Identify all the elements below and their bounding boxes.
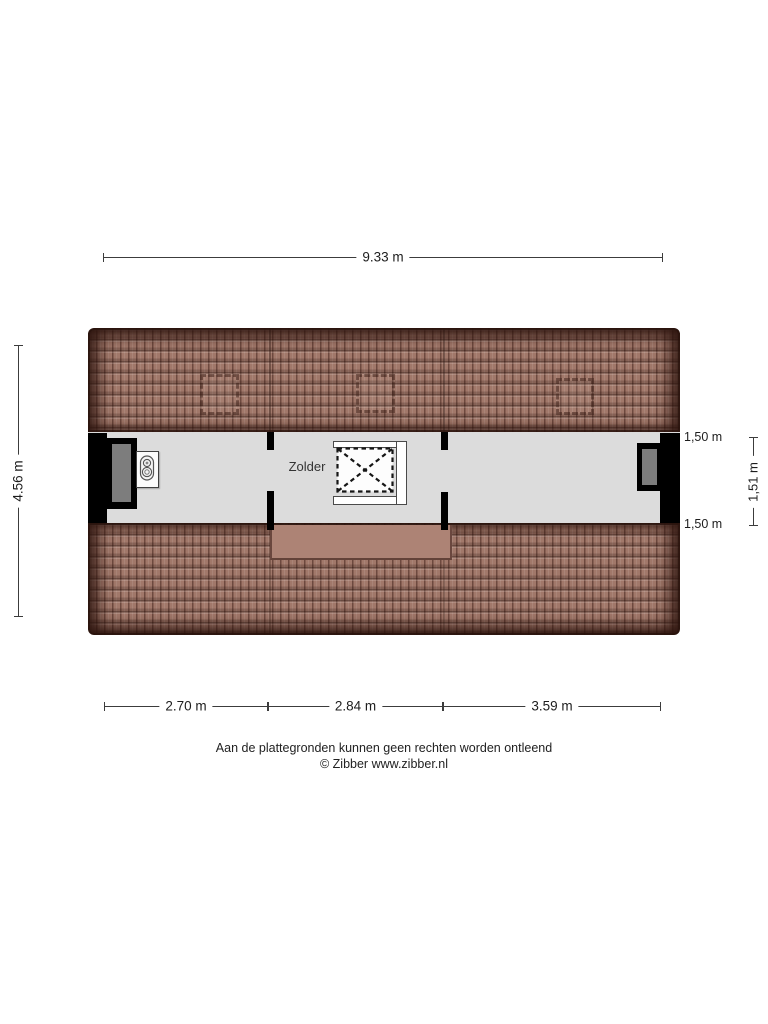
disclaimer-text: Aan de plattegronden kunnen geen rechten… <box>0 741 768 755</box>
dimension-label-top: 9.33 m <box>356 250 409 265</box>
wall-stub <box>441 492 448 530</box>
dimension-left-height: 4.56 m <box>11 345 26 617</box>
dimension-right-height: 1,51 m <box>746 437 761 526</box>
boiler-glyph <box>137 452 158 487</box>
dimension-tick <box>749 525 758 526</box>
floorplan-page: 9.33 m 4.56 m <box>0 0 768 1024</box>
wall-stub <box>267 491 274 530</box>
roof-window-icon <box>356 374 395 413</box>
stair-landing <box>396 441 407 505</box>
roof-seam <box>269 328 271 432</box>
dimension-label-right-bottom: 1,50 m <box>684 517 722 531</box>
roof-dormer <box>270 525 452 560</box>
dimension-bottom-segment-1: 2.70 m <box>104 699 268 714</box>
roof-window-icon <box>200 374 239 415</box>
window-left <box>112 444 131 502</box>
roof-slope-top <box>88 328 680 432</box>
dimension-tick <box>660 702 661 711</box>
stairwell <box>333 441 407 505</box>
dimension-tick <box>103 253 104 262</box>
roof-window-icon <box>556 378 594 415</box>
wall-left-gable <box>88 433 107 523</box>
roof-seam <box>443 328 445 432</box>
dimension-top-width: 9.33 m <box>103 250 663 265</box>
dimension-label-bottom-1: 2.70 m <box>159 699 212 714</box>
dimension-bottom-segment-2: 2.84 m <box>268 699 443 714</box>
copyright-text: © Zibber www.zibber.nl <box>0 757 768 771</box>
dimension-label-bottom-2: 2.84 m <box>329 699 382 714</box>
dimension-tick <box>14 345 23 346</box>
dimension-tick <box>749 437 758 438</box>
wall-stub <box>441 432 448 450</box>
dimension-tick <box>443 702 444 711</box>
dimension-label-right-middle: 1,51 m <box>746 456 761 508</box>
dimension-label-bottom-3: 3.59 m <box>525 699 578 714</box>
dimension-tick <box>104 702 105 711</box>
wall-right-gable <box>660 433 680 523</box>
dimension-tick <box>662 253 663 262</box>
dimension-label-left: 4.56 m <box>11 454 26 507</box>
window-right <box>642 449 657 485</box>
dimension-tick <box>14 616 23 617</box>
dimension-bottom-segment-3: 3.59 m <box>443 699 661 714</box>
boiler-icon <box>136 451 159 488</box>
stairwell-opening-icon <box>336 447 394 493</box>
stair-landing <box>333 496 399 505</box>
wall-stub <box>267 432 274 450</box>
dimension-tick <box>268 702 269 711</box>
dimension-label-right-top: 1,50 m <box>684 430 722 444</box>
floorplan-drawing: Zolder <box>88 328 680 635</box>
roof-slope-bottom <box>88 523 680 635</box>
